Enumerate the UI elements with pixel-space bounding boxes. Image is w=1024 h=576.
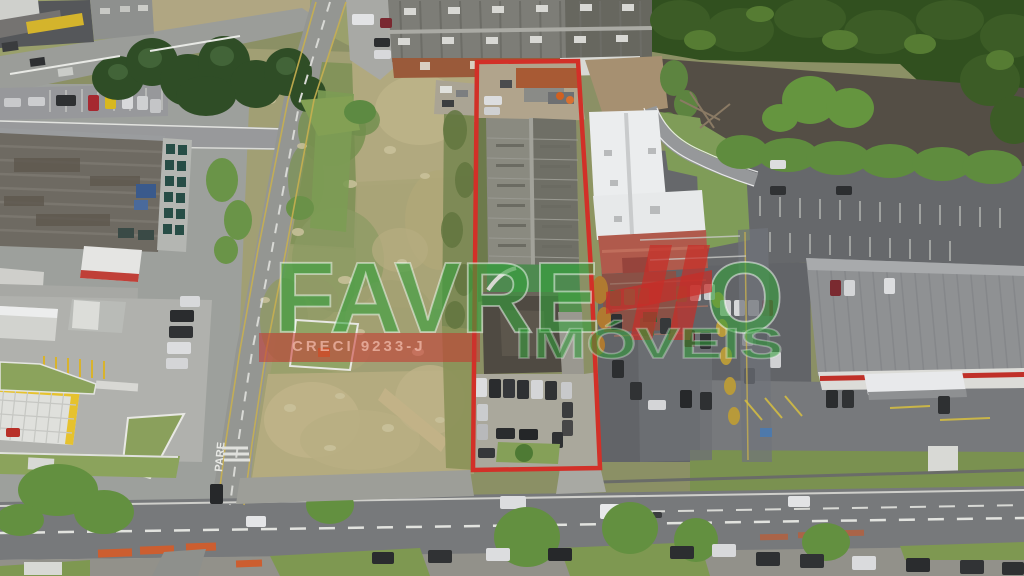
- svg-text:IMÓVEIS: IMÓVEIS: [515, 319, 783, 368]
- svg-text:CRECI 9233-J: CRECI 9233-J: [292, 338, 426, 355]
